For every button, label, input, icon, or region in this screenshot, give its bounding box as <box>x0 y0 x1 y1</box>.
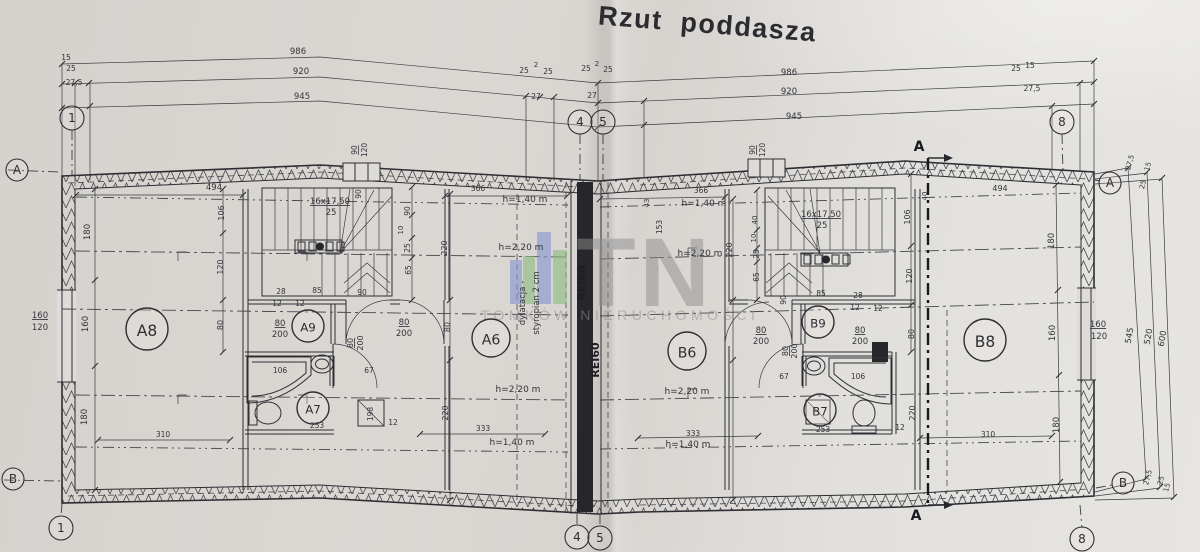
dim-label: 220 <box>441 405 450 420</box>
axis-label: B <box>1119 476 1127 490</box>
axis-label: 8 <box>1058 115 1066 129</box>
stairs-right <box>765 188 895 296</box>
dim-label: 67 <box>364 366 374 375</box>
dim-label: 25 <box>1011 64 1021 73</box>
dim-label: 12 <box>388 418 398 427</box>
dim-label: 986 <box>781 68 797 78</box>
dim-label: h=1,40 m <box>503 195 548 205</box>
dim-label: 90 <box>779 295 788 305</box>
floor-plan-photo: Rzut poddasza <box>0 0 1200 552</box>
dim-label: 2 <box>534 61 538 69</box>
dim-label: 25 <box>403 243 412 253</box>
dim-label: 80 <box>781 346 790 356</box>
dim-label: 25 <box>66 64 76 73</box>
dim-label: 600 <box>1157 330 1170 348</box>
dim-label: 120 <box>905 268 914 283</box>
dim-label: 120 <box>32 323 48 333</box>
dim-label: h=1,40 m <box>666 440 711 450</box>
dim-label: 920 <box>293 67 309 77</box>
dim-label: h=2,20 m <box>678 249 723 259</box>
dim-label: 198 <box>366 407 375 422</box>
dim-label: 160 <box>81 316 91 332</box>
dim-label: 200 <box>356 335 365 350</box>
axis-label: 8 <box>1078 532 1086 546</box>
dim-label: 27 <box>587 91 597 100</box>
dim-label: 333 <box>476 424 491 433</box>
dim-label: REI60 <box>575 265 588 301</box>
dim-label: 12 <box>873 304 883 313</box>
dim-label: 27,5 <box>1124 154 1136 171</box>
room-label: B7 <box>812 404 828 418</box>
dim-label: 494 <box>992 184 1007 193</box>
dim-label: 25 <box>519 66 529 75</box>
dim-label: 106 <box>273 366 288 375</box>
dim-label: 80 <box>346 338 355 348</box>
floor-plan-drawing: TN TOMKÓW NIERUCHOMOŚCI 9861525920252252… <box>0 0 1200 552</box>
dim-label: 27,5 <box>1142 469 1154 486</box>
dim-label: 80 <box>756 326 767 336</box>
dim-label: 200 <box>852 337 868 347</box>
dim-label: 90 <box>357 288 367 297</box>
dim-label: 27,5 <box>1024 84 1041 93</box>
dim-label: 160 <box>1090 320 1106 330</box>
dim-label: 25 <box>543 67 553 76</box>
dim-label: 945 <box>294 92 310 102</box>
dim-label: 200 <box>753 337 769 347</box>
dim-label: 90 <box>350 145 359 155</box>
room-label: B9 <box>810 316 826 330</box>
dim-label: 67 <box>779 372 789 381</box>
dim-label: 25 <box>1138 179 1148 190</box>
dim-label: 106 <box>217 205 226 220</box>
axis-label: 5 <box>599 115 607 129</box>
dim-label: 310 <box>981 430 996 439</box>
dim-label: 85 <box>816 289 826 298</box>
dim-label: dylatacja - <box>518 281 528 326</box>
dim-label: 180 <box>80 409 90 425</box>
dim-label: h=1,40 m <box>682 199 727 209</box>
dim-label: 28 <box>853 291 863 300</box>
dim-label: 520 <box>1143 328 1156 346</box>
room-label: B8 <box>975 333 996 351</box>
axis-label: 1 <box>68 111 76 125</box>
dim-label: 90 <box>403 206 412 216</box>
room-label: A9 <box>300 320 316 334</box>
dim-label: 153 <box>655 220 664 235</box>
dim-label: 545 <box>1124 327 1137 345</box>
axis-label: B <box>9 472 17 486</box>
axis-label: 4 <box>573 530 581 544</box>
dim-label: 15 <box>1143 161 1153 172</box>
dim-label: 80 <box>275 319 286 329</box>
dim-label: 200 <box>272 330 288 340</box>
room-label: A8 <box>137 322 158 340</box>
dim-label: 366 <box>694 186 709 195</box>
dim-label: 160 <box>32 311 48 321</box>
section-line <box>928 154 953 509</box>
dim-label: 310 <box>156 430 171 439</box>
dim-label: 160 <box>1048 325 1058 341</box>
dim-label: 80 <box>216 320 225 330</box>
dim-label: 65 <box>752 272 761 282</box>
dim-label: h=2,20 m <box>496 385 541 395</box>
dim-label: 80 <box>907 329 916 339</box>
dim-label: 80 <box>855 326 866 336</box>
room-label: B6 <box>678 345 697 361</box>
dim-label: 333 <box>686 429 701 438</box>
dim-label: 10 <box>750 234 758 243</box>
section-letter: A <box>914 139 925 155</box>
dim-label: h=2,20 m <box>499 243 544 253</box>
dim-label: 15 <box>61 53 71 62</box>
dim-label: 180 <box>1047 233 1057 249</box>
dim-label: 120 <box>360 143 369 158</box>
dim-label: 90 <box>748 145 757 155</box>
bathroom-fixtures <box>247 355 891 433</box>
dim-label: 106 <box>903 209 912 224</box>
dim-label: 43 <box>643 199 651 208</box>
axis-label: 4 <box>576 115 584 129</box>
dim-label: 120 <box>758 143 767 158</box>
dim-label: 200 <box>790 343 799 358</box>
axis-label: 5 <box>596 531 604 545</box>
dim-label: 12 <box>272 299 282 308</box>
dim-label: 80 <box>443 322 452 332</box>
axis-label: A <box>13 163 22 177</box>
dim-label: 12 <box>295 299 305 308</box>
dim-label: styropian 2 cm <box>532 271 542 334</box>
dim-label: 945 <box>786 112 802 122</box>
axis-label: A <box>1106 176 1115 190</box>
dim-label: 85 <box>312 286 322 295</box>
dim-label: 90 <box>354 189 363 199</box>
dim-label: 16x17,50 <box>801 210 841 220</box>
axis-label: 1 <box>57 521 65 535</box>
room-label: A7 <box>305 402 321 416</box>
dim-label: 10 <box>397 226 405 235</box>
dim-label: 65 <box>404 265 413 275</box>
dim-label: 120 <box>1091 332 1107 342</box>
section-letter: A <box>911 508 922 524</box>
watermark-bar <box>553 250 567 304</box>
dim-label: 16x17,50 <box>310 197 350 207</box>
dim-label: 494 <box>206 183 222 193</box>
dim-label: 180 <box>83 224 93 240</box>
dim-label: 106 <box>851 372 866 381</box>
dim-label: 920 <box>781 87 797 97</box>
dim-label: 12 <box>850 303 860 312</box>
dim-label: 220 <box>725 242 734 257</box>
dim-label: 25 <box>326 208 337 218</box>
dim-label: REI60 <box>589 342 602 378</box>
dim-label: 366 <box>471 184 486 193</box>
dim-label: 220 <box>908 405 917 420</box>
dim-label: 200 <box>396 329 412 339</box>
dim-label: 25 <box>603 65 613 74</box>
dim-label: 80 <box>399 318 410 328</box>
dim-label: h=1,40 m <box>490 438 535 448</box>
room-label: A6 <box>482 332 501 348</box>
dim-label: 25 <box>581 64 591 73</box>
dim-label: 120 <box>216 259 225 274</box>
dim-label: 25 <box>752 249 761 259</box>
dim-label: 15 <box>1025 61 1035 70</box>
dim-label: 27,5 <box>66 78 83 87</box>
dim-label: 25 <box>817 221 828 231</box>
dim-label: 12 <box>895 423 905 432</box>
dim-label: 40 <box>751 216 759 225</box>
dim-label: 180 <box>1052 417 1062 433</box>
dim-label: 27 <box>531 92 541 101</box>
dim-label: 220 <box>440 240 449 255</box>
dim-label: 986 <box>290 47 306 57</box>
dim-label: 2 <box>595 60 599 68</box>
dim-label: 40 <box>921 192 929 201</box>
dim-label: 28 <box>276 287 286 296</box>
dim-label: h=2,20 m <box>665 387 710 397</box>
dim-label: 15 <box>1162 482 1172 493</box>
